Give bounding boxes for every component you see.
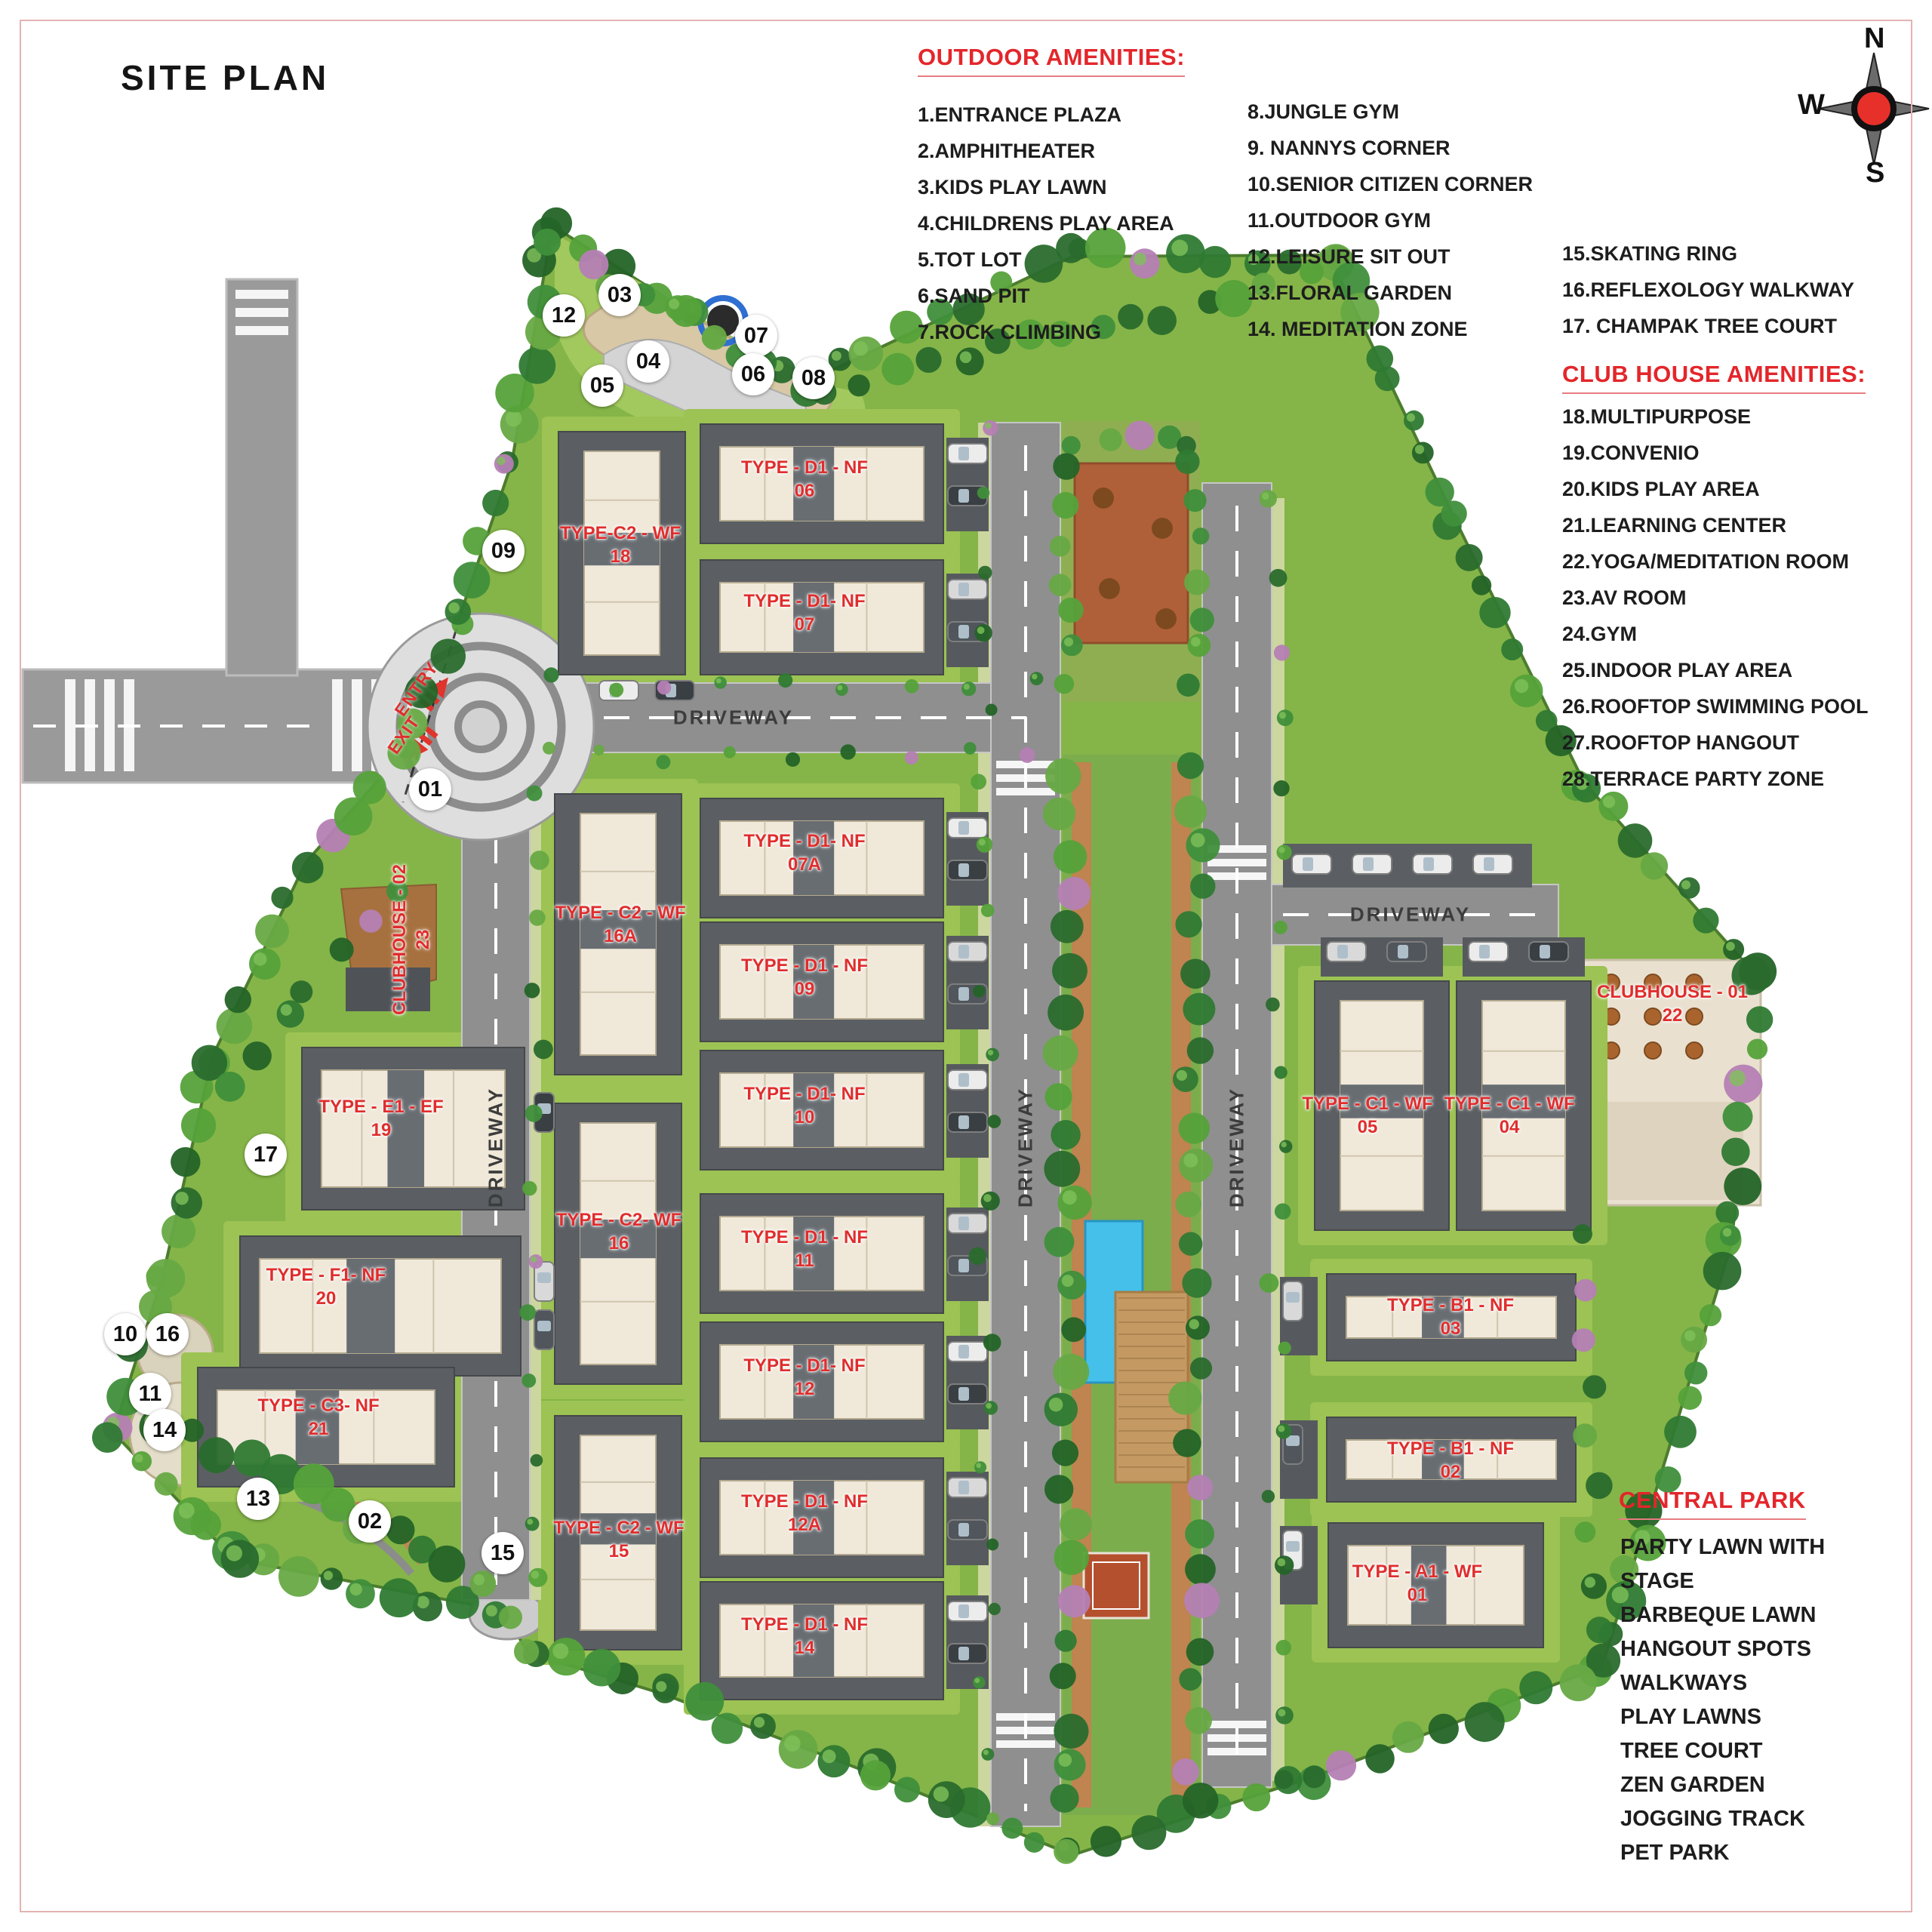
building-type: TYPE-C2 - WF bbox=[560, 521, 681, 545]
amenity-marker: 07 bbox=[735, 315, 777, 357]
building-label: TYPE - D1 - NF06 bbox=[741, 456, 868, 503]
building-label: TYPE - B1 - NF02 bbox=[1387, 1437, 1514, 1484]
building-type: TYPE - E1 - EF bbox=[318, 1095, 443, 1118]
amenity-item: 28.TERRACE PARTY ZONE bbox=[1562, 761, 1869, 797]
building-type: TYPE - D1 - NF bbox=[741, 456, 868, 479]
amenity-item: 10.SENIOR CITIZEN CORNER bbox=[1247, 166, 1533, 202]
amenity-item: 20.KIDS PLAY AREA bbox=[1562, 471, 1869, 507]
clubhouse-label: CLUBHOUSE - 0122 bbox=[1597, 980, 1748, 1027]
amenity-item: PET PARK bbox=[1620, 1836, 1869, 1870]
building-label: TYPE - C2 - WF15 bbox=[553, 1516, 684, 1563]
building-label: TYPE - C1 - WF04 bbox=[1444, 1092, 1574, 1139]
amenity-marker: 13 bbox=[237, 1478, 279, 1520]
amenity-item: 11.OUTDOOR GYM bbox=[1247, 202, 1533, 238]
amenity-marker: 09 bbox=[482, 530, 525, 572]
clubhouse-number: 22 bbox=[1597, 1004, 1748, 1027]
building-label: TYPE - D1 - NF09 bbox=[741, 954, 868, 1001]
building-number: 12 bbox=[743, 1377, 865, 1401]
amenity-marker: 03 bbox=[598, 274, 641, 316]
clubhouse-number: 23 bbox=[411, 864, 435, 1015]
amenity-item: 26.ROOFTOP SWIMMING POOL bbox=[1562, 688, 1869, 724]
clubhouse-name: CLUBHOUSE - 01 bbox=[1597, 980, 1748, 1004]
clubhouse-amenities-list: 18.MULTIPURPOSE19.CONVENIO20.KIDS PLAY A… bbox=[1562, 398, 1869, 797]
amenity-marker: 06 bbox=[732, 353, 774, 395]
building-label: TYPE-C2 - WF18 bbox=[560, 521, 681, 568]
amenity-marker: 05 bbox=[581, 365, 623, 407]
building-label: TYPE - C2 - WF16A bbox=[555, 901, 685, 948]
building-type: TYPE - D1- NF bbox=[743, 589, 865, 613]
amenity-item: 23.AV ROOM bbox=[1562, 580, 1869, 616]
driveway-label: DRIVEWAY bbox=[673, 706, 794, 730]
building-number: 16 bbox=[556, 1232, 682, 1255]
building-type: TYPE - D1- NF bbox=[743, 829, 865, 853]
building-type: TYPE - D1 - NF bbox=[741, 1490, 868, 1513]
amenity-item: 2.AMPHITHEATER bbox=[918, 133, 1174, 169]
amenity-marker: 15 bbox=[481, 1532, 524, 1574]
building-type: TYPE - D1- NF bbox=[743, 1354, 865, 1377]
amenity-item: TREE COURT bbox=[1620, 1734, 1869, 1768]
outdoor-amenities-col2: 8.JUNGLE GYM9. NANNYS CORNER10.SENIOR CI… bbox=[1247, 94, 1533, 347]
amenity-item: 6.SAND PIT bbox=[918, 278, 1174, 314]
clubhouse-name: CLUBHOUSE - 02 bbox=[388, 864, 411, 1015]
amenity-item: PARTY LAWN WITH STAGE bbox=[1620, 1531, 1869, 1598]
amenity-item: 4.CHILDRENS PLAY AREA bbox=[918, 205, 1174, 241]
building-number: 21 bbox=[257, 1417, 379, 1441]
building-type: TYPE - C1 - WF bbox=[1444, 1092, 1574, 1115]
outdoor-amenities-heading: OUTDOOR AMENITIES: bbox=[918, 44, 1185, 77]
amenity-item: 14. MEDITATION ZONE bbox=[1247, 311, 1533, 347]
building-type: TYPE - B1 - NF bbox=[1387, 1437, 1514, 1460]
amenity-marker: 02 bbox=[349, 1500, 391, 1543]
building-type: TYPE - D1- NF bbox=[743, 1082, 865, 1106]
amenity-item: 25.INDOOR PLAY AREA bbox=[1562, 652, 1869, 688]
building-type: TYPE - C2 - WF bbox=[553, 1516, 684, 1540]
building-label: TYPE - E1 - EF19 bbox=[318, 1095, 443, 1142]
building-type: TYPE - A1 - WF bbox=[1352, 1560, 1482, 1583]
driveway-label: DRIVEWAY bbox=[1014, 1087, 1038, 1207]
driveway-label: DRIVEWAY bbox=[1226, 1087, 1249, 1207]
outdoor-amenities-col3: 15.SKATING RING16.REFLEXOLOGY WALKWAY17.… bbox=[1562, 235, 1854, 344]
central-park-heading: CENTRAL PARK bbox=[1619, 1487, 1806, 1520]
building-number: 02 bbox=[1387, 1460, 1514, 1484]
building-number: 11 bbox=[741, 1249, 868, 1272]
amenity-item: ZEN GARDEN bbox=[1620, 1768, 1869, 1802]
building-label: TYPE - D1 - NF11 bbox=[741, 1226, 868, 1272]
amenity-item: 27.ROOFTOP HANGOUT bbox=[1562, 724, 1869, 761]
building-type: TYPE - F1- NF bbox=[266, 1263, 386, 1287]
driveway-label: DRIVEWAY bbox=[485, 1087, 508, 1207]
amenity-item: 9. NANNYS CORNER bbox=[1247, 130, 1533, 166]
amenity-item: JOGGING TRACK bbox=[1620, 1802, 1869, 1836]
amenity-item: 7.ROCK CLIMBING bbox=[918, 314, 1174, 350]
amenity-marker: 14 bbox=[143, 1409, 186, 1451]
amenity-marker: 10 bbox=[104, 1313, 146, 1355]
building-type: TYPE - D1 - NF bbox=[741, 1613, 868, 1636]
amenity-item: 22.YOGA/MEDITATION ROOM bbox=[1562, 543, 1869, 580]
amenity-item: 18.MULTIPURPOSE bbox=[1562, 398, 1869, 435]
compass-north: N bbox=[1864, 23, 1884, 55]
clubhouse-amenities-heading: CLUB HOUSE AMENITIES: bbox=[1562, 361, 1866, 394]
clubhouse-label: CLUBHOUSE - 0223 bbox=[388, 864, 435, 1015]
building-type: TYPE - D1 - NF bbox=[741, 1226, 868, 1249]
central-park-list: PARTY LAWN WITH STAGEBARBEQUE LAWNHANGOU… bbox=[1620, 1531, 1869, 1870]
building-type: TYPE - C2 - WF bbox=[555, 901, 685, 924]
building-number: 06 bbox=[741, 479, 868, 503]
outdoor-amenities-col1: 1.ENTRANCE PLAZA2.AMPHITHEATER3.KIDS PLA… bbox=[918, 97, 1174, 350]
amenity-item: WALKWAYS bbox=[1620, 1666, 1869, 1700]
exit-label: EXIT bbox=[383, 712, 424, 758]
amenity-item: 1.ENTRANCE PLAZA bbox=[918, 97, 1174, 133]
amenity-marker: 08 bbox=[792, 357, 835, 399]
building-label: TYPE - F1- NF20 bbox=[266, 1263, 386, 1310]
building-number: 05 bbox=[1302, 1115, 1432, 1139]
amenity-marker: 16 bbox=[146, 1313, 189, 1355]
building-number: 07A bbox=[743, 853, 865, 876]
building-label: TYPE - C3- NF21 bbox=[257, 1394, 379, 1441]
amenity-item: 15.SKATING RING bbox=[1562, 235, 1854, 272]
building-number: 16A bbox=[555, 924, 685, 948]
entry-label: ENTRY bbox=[390, 658, 442, 721]
amenity-marker: 12 bbox=[543, 294, 585, 337]
amenity-item: 16.REFLEXOLOGY WALKWAY bbox=[1562, 272, 1854, 308]
building-label: TYPE - C2- WF16 bbox=[556, 1208, 682, 1255]
building-type: TYPE - C1 - WF bbox=[1302, 1092, 1432, 1115]
building-type: TYPE - C3- NF bbox=[257, 1394, 379, 1417]
building-number: 04 bbox=[1444, 1115, 1574, 1139]
building-label: TYPE - D1- NF07 bbox=[743, 589, 865, 636]
amenity-item: 17. CHAMPAK TREE COURT bbox=[1562, 308, 1854, 344]
amenity-item: PLAY LAWNS bbox=[1620, 1700, 1869, 1734]
page-title: SITE PLAN bbox=[121, 57, 329, 98]
building-number: 10 bbox=[743, 1106, 865, 1129]
building-number: 09 bbox=[741, 977, 868, 1001]
building-label: TYPE - C1 - WF05 bbox=[1302, 1092, 1432, 1139]
building-number: 14 bbox=[741, 1636, 868, 1660]
building-label: TYPE - D1 - NF12A bbox=[741, 1490, 868, 1537]
building-label: TYPE - D1- NF10 bbox=[743, 1082, 865, 1129]
driveway-label: DRIVEWAY bbox=[1350, 903, 1471, 927]
amenity-item: 13.FLORAL GARDEN bbox=[1247, 275, 1533, 311]
building-type: TYPE - B1 - NF bbox=[1387, 1294, 1514, 1317]
compass: N S W E bbox=[1787, 27, 1932, 193]
amenity-marker: 17 bbox=[245, 1134, 287, 1176]
building-label: TYPE - D1 - NF14 bbox=[741, 1613, 868, 1660]
building-label: TYPE - A1 - WF01 bbox=[1352, 1560, 1482, 1607]
building-number: 20 bbox=[266, 1287, 386, 1310]
amenity-item: 3.KIDS PLAY LAWN bbox=[918, 169, 1174, 205]
compass-west: W bbox=[1798, 89, 1825, 122]
building-number: 18 bbox=[560, 545, 681, 568]
amenity-item: 12.LEISURE SIT OUT bbox=[1247, 238, 1533, 275]
building-number: 01 bbox=[1352, 1583, 1482, 1607]
amenity-item: 8.JUNGLE GYM bbox=[1247, 94, 1533, 130]
amenity-marker: 04 bbox=[627, 340, 669, 383]
building-label: TYPE - D1- NF07A bbox=[743, 829, 865, 876]
building-number: 19 bbox=[318, 1118, 443, 1142]
building-label: TYPE - D1- NF12 bbox=[743, 1354, 865, 1401]
amenity-item: 5.TOT LOT bbox=[918, 241, 1174, 278]
building-number: 03 bbox=[1387, 1317, 1514, 1340]
amenity-item: HANGOUT SPOTS bbox=[1620, 1632, 1869, 1666]
building-number: 12A bbox=[741, 1513, 868, 1537]
amenity-item: BARBEQUE LAWN bbox=[1620, 1598, 1869, 1632]
amenity-item: 19.CONVENIO bbox=[1562, 435, 1869, 471]
site-plan-page: SITE PLAN N S W E OUTDOOR AMENITIES: 1.E… bbox=[0, 0, 1932, 1932]
building-label: TYPE - B1 - NF03 bbox=[1387, 1294, 1514, 1340]
building-type: TYPE - D1 - NF bbox=[741, 954, 868, 977]
building-type: TYPE - C2- WF bbox=[556, 1208, 682, 1232]
amenity-marker: 01 bbox=[409, 768, 451, 811]
amenity-item: 24.GYM bbox=[1562, 616, 1869, 652]
building-number: 07 bbox=[743, 613, 865, 636]
compass-south: S bbox=[1866, 157, 1884, 189]
amenity-item: 21.LEARNING CENTER bbox=[1562, 507, 1869, 543]
building-number: 15 bbox=[553, 1540, 684, 1563]
